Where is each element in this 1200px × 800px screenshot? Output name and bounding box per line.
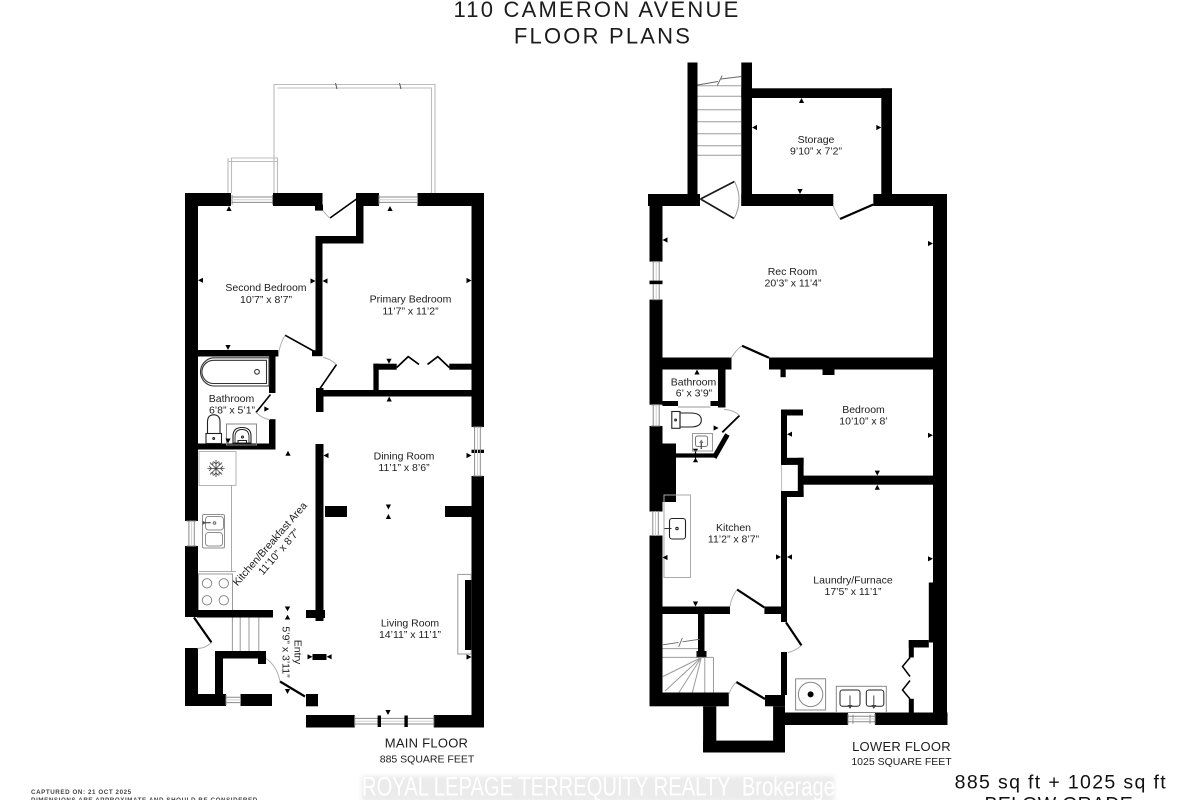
svg-text:Rec Room: Rec Room (768, 266, 818, 278)
svg-text:MAIN FLOOR: MAIN FLOOR (385, 736, 468, 751)
svg-text:6’ x 3’9”: 6’ x 3’9” (676, 388, 713, 400)
svg-text:885 SQUARE FEET: 885 SQUARE FEET (380, 754, 475, 766)
svg-text:9’10” x 7’2”: 9’10” x 7’2” (790, 146, 842, 158)
svg-text:FLOOR PLANS: FLOOR PLANS (514, 24, 692, 49)
svg-text:Bedroom: Bedroom (842, 404, 885, 416)
svg-text:Dining Room: Dining Room (374, 451, 435, 463)
svg-text:Primary Bedroom: Primary Bedroom (370, 294, 452, 306)
svg-text:Entry: Entry (292, 640, 304, 665)
svg-text:20’3” x 11’4”: 20’3” x 11’4” (764, 278, 822, 290)
svg-text:Storage: Storage (798, 134, 835, 146)
svg-text:Bathroom: Bathroom (209, 393, 255, 405)
svg-text:CAPTURED ON: 21 OCT 2025: CAPTURED ON: 21 OCT 2025 (31, 789, 132, 796)
svg-text:11’2” x 8’7”: 11’2” x 8’7” (708, 534, 760, 546)
svg-text:11’7” x 11’2”: 11’7” x 11’2” (382, 306, 439, 318)
svg-text:10’10” x 8’: 10’10” x 8’ (839, 416, 887, 428)
svg-text:BELOW GRADE: BELOW GRADE (985, 794, 1134, 800)
svg-text:1025 SQUARE FEET: 1025 SQUARE FEET (851, 756, 952, 768)
svg-text:Living Room: Living Room (381, 618, 440, 630)
svg-text:10’7” x 8’7”: 10’7” x 8’7” (240, 294, 292, 306)
svg-text:Laundry/Furnace: Laundry/Furnace (813, 575, 893, 587)
svg-text:Kitchen: Kitchen (716, 522, 751, 534)
svg-text:14’11” x 11’1”: 14’11” x 11’1” (379, 629, 442, 641)
svg-text:11’1” x 8’6”: 11’1” x 8’6” (378, 462, 430, 474)
svg-text:ROYAL LEPAGE TERREQUITY REALTY: ROYAL LEPAGE TERREQUITY REALTY Brokerage (362, 772, 835, 800)
svg-text:Second Bedroom: Second Bedroom (225, 282, 306, 294)
svg-text:17’5” x 11’1”: 17’5” x 11’1” (824, 586, 882, 598)
svg-text:110 CAMERON AVENUE: 110 CAMERON AVENUE (454, 0, 741, 22)
svg-text:6’8” x 5’1”: 6’8” x 5’1” (209, 405, 256, 417)
svg-text:885 sq ft + 1025 sq ft: 885 sq ft + 1025 sq ft (955, 772, 1167, 794)
svg-text:LOWER FLOOR: LOWER FLOOR (852, 739, 951, 754)
svg-text:5’9” x 3’11”: 5’9” x 3’11” (280, 626, 292, 678)
